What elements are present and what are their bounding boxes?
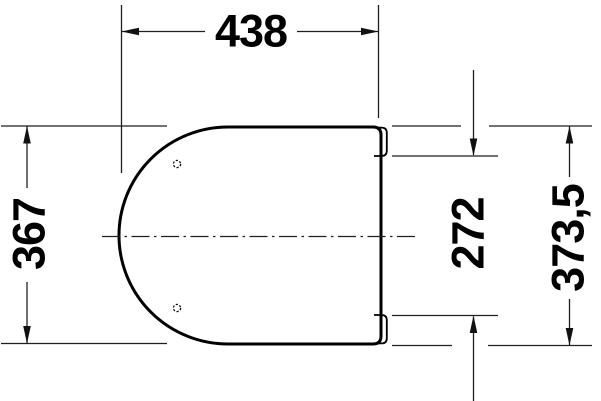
seat-outline xyxy=(119,127,381,344)
dimension-value-hinge-inner-length: 272 xyxy=(442,197,493,269)
technical-drawing: 438 367 272 xyxy=(0,0,601,401)
arrow-down-icon xyxy=(566,328,574,346)
arrow-up-icon xyxy=(23,126,31,144)
drawing-canvas: 438 367 272 xyxy=(0,0,601,401)
arrow-right-icon xyxy=(361,28,379,36)
dimension-hinge-inner-length: 272 xyxy=(392,70,498,401)
arrow-left-icon xyxy=(122,28,140,36)
arrow-down-icon xyxy=(470,139,478,157)
dimension-value-side-length: 367 xyxy=(3,198,54,270)
arrow-down-icon xyxy=(23,326,31,344)
arrow-up-icon xyxy=(470,316,478,334)
dimension-value-overall-width: 438 xyxy=(215,6,287,57)
arrow-up-icon xyxy=(566,126,574,144)
dimension-value-overall-length: 373,5 xyxy=(542,184,593,292)
seat-shape xyxy=(102,127,416,344)
